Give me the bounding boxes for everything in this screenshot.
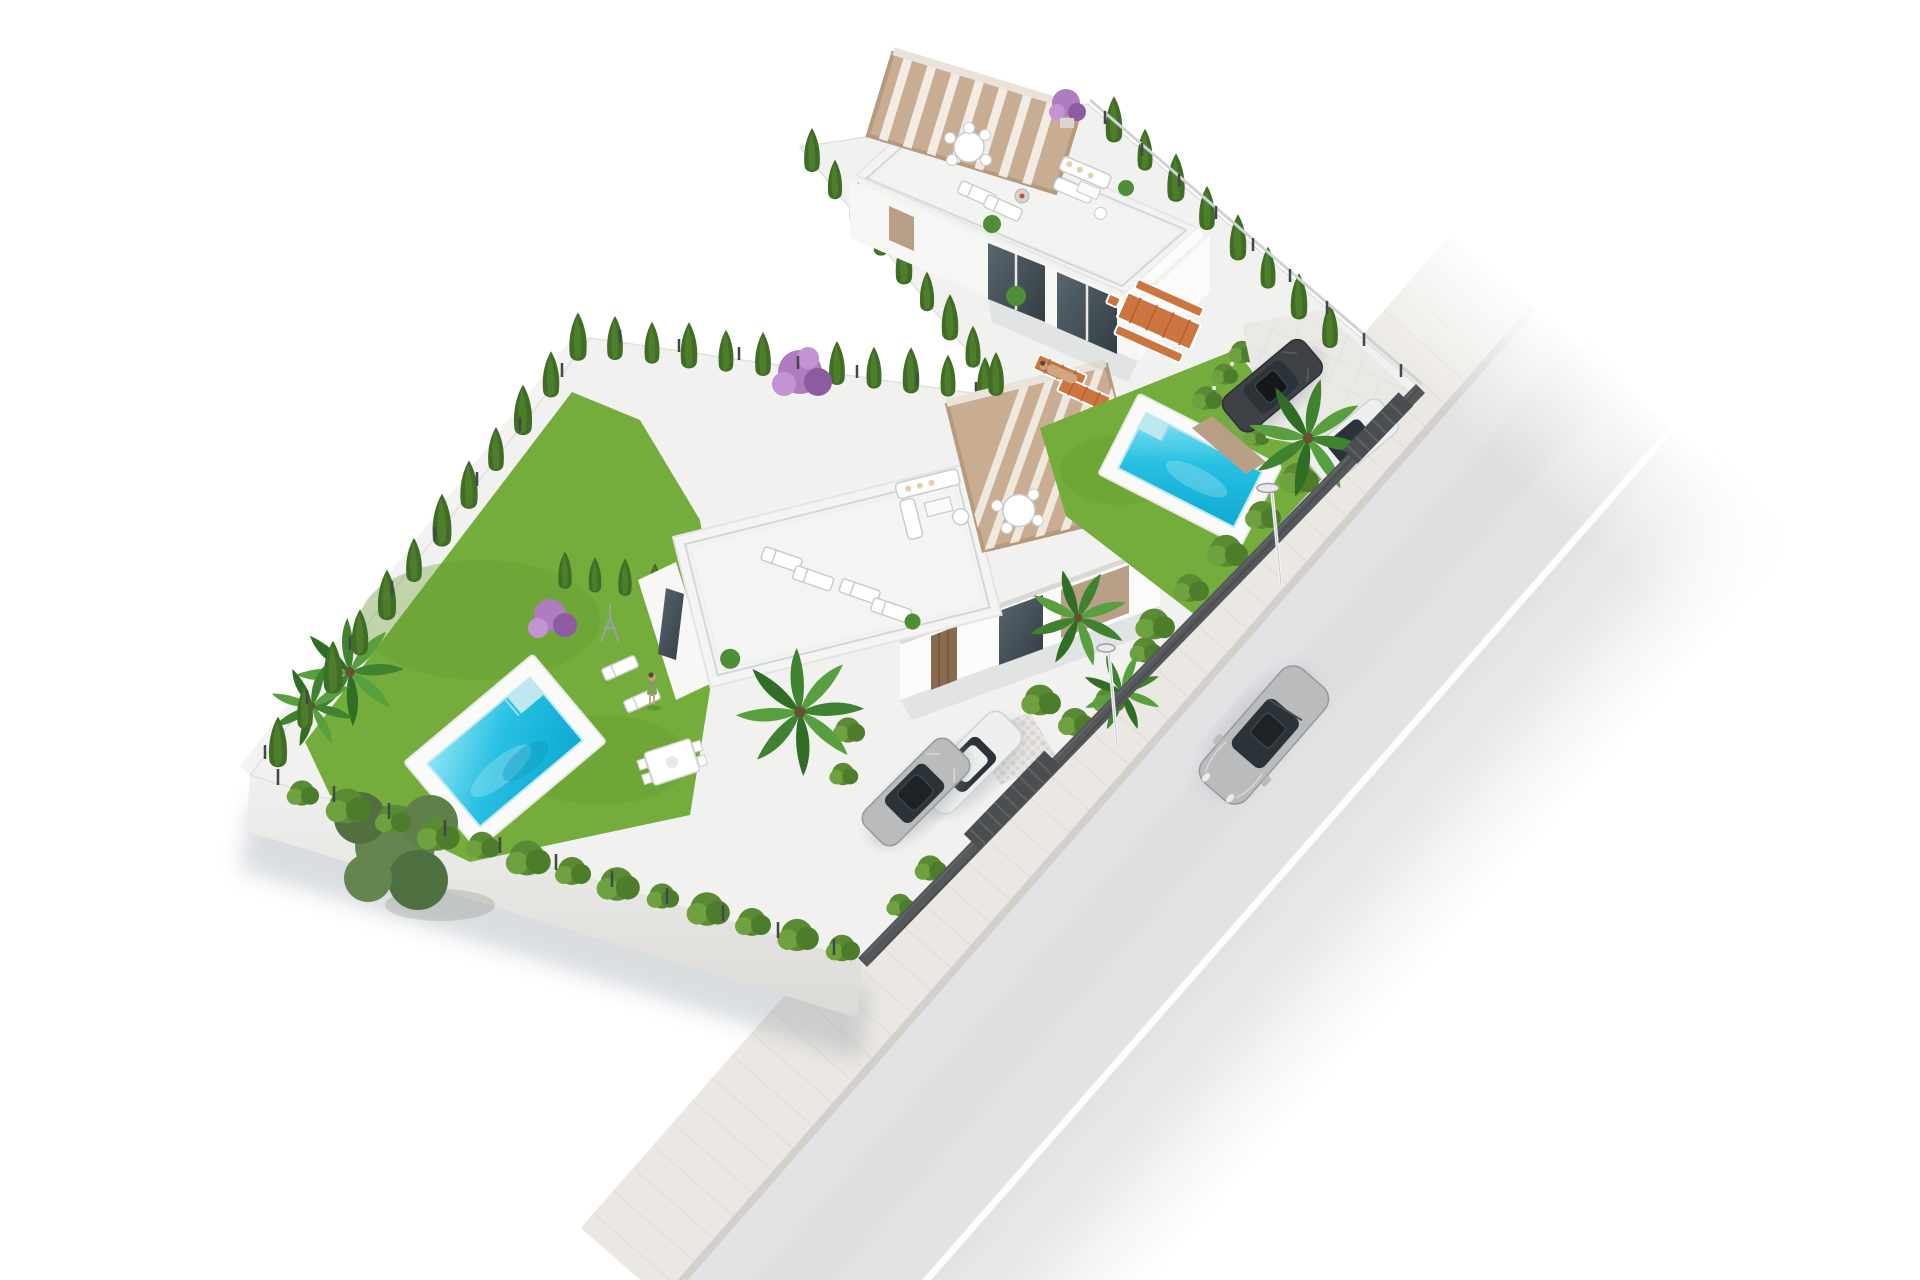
patio-plant [1006,286,1026,306]
facade-pier [1045,266,1057,328]
olive-canopy [344,854,392,902]
olive-canopy [388,850,448,910]
lamp-head [1097,644,1115,652]
render-canvas [0,0,1920,1280]
villa2-door [931,626,957,690]
fire-bowl-coals [1020,194,1025,199]
lamp-head [1257,484,1279,493]
property-render [0,0,1920,1280]
roof-plant [1118,180,1134,196]
roof-plant [983,215,1001,233]
